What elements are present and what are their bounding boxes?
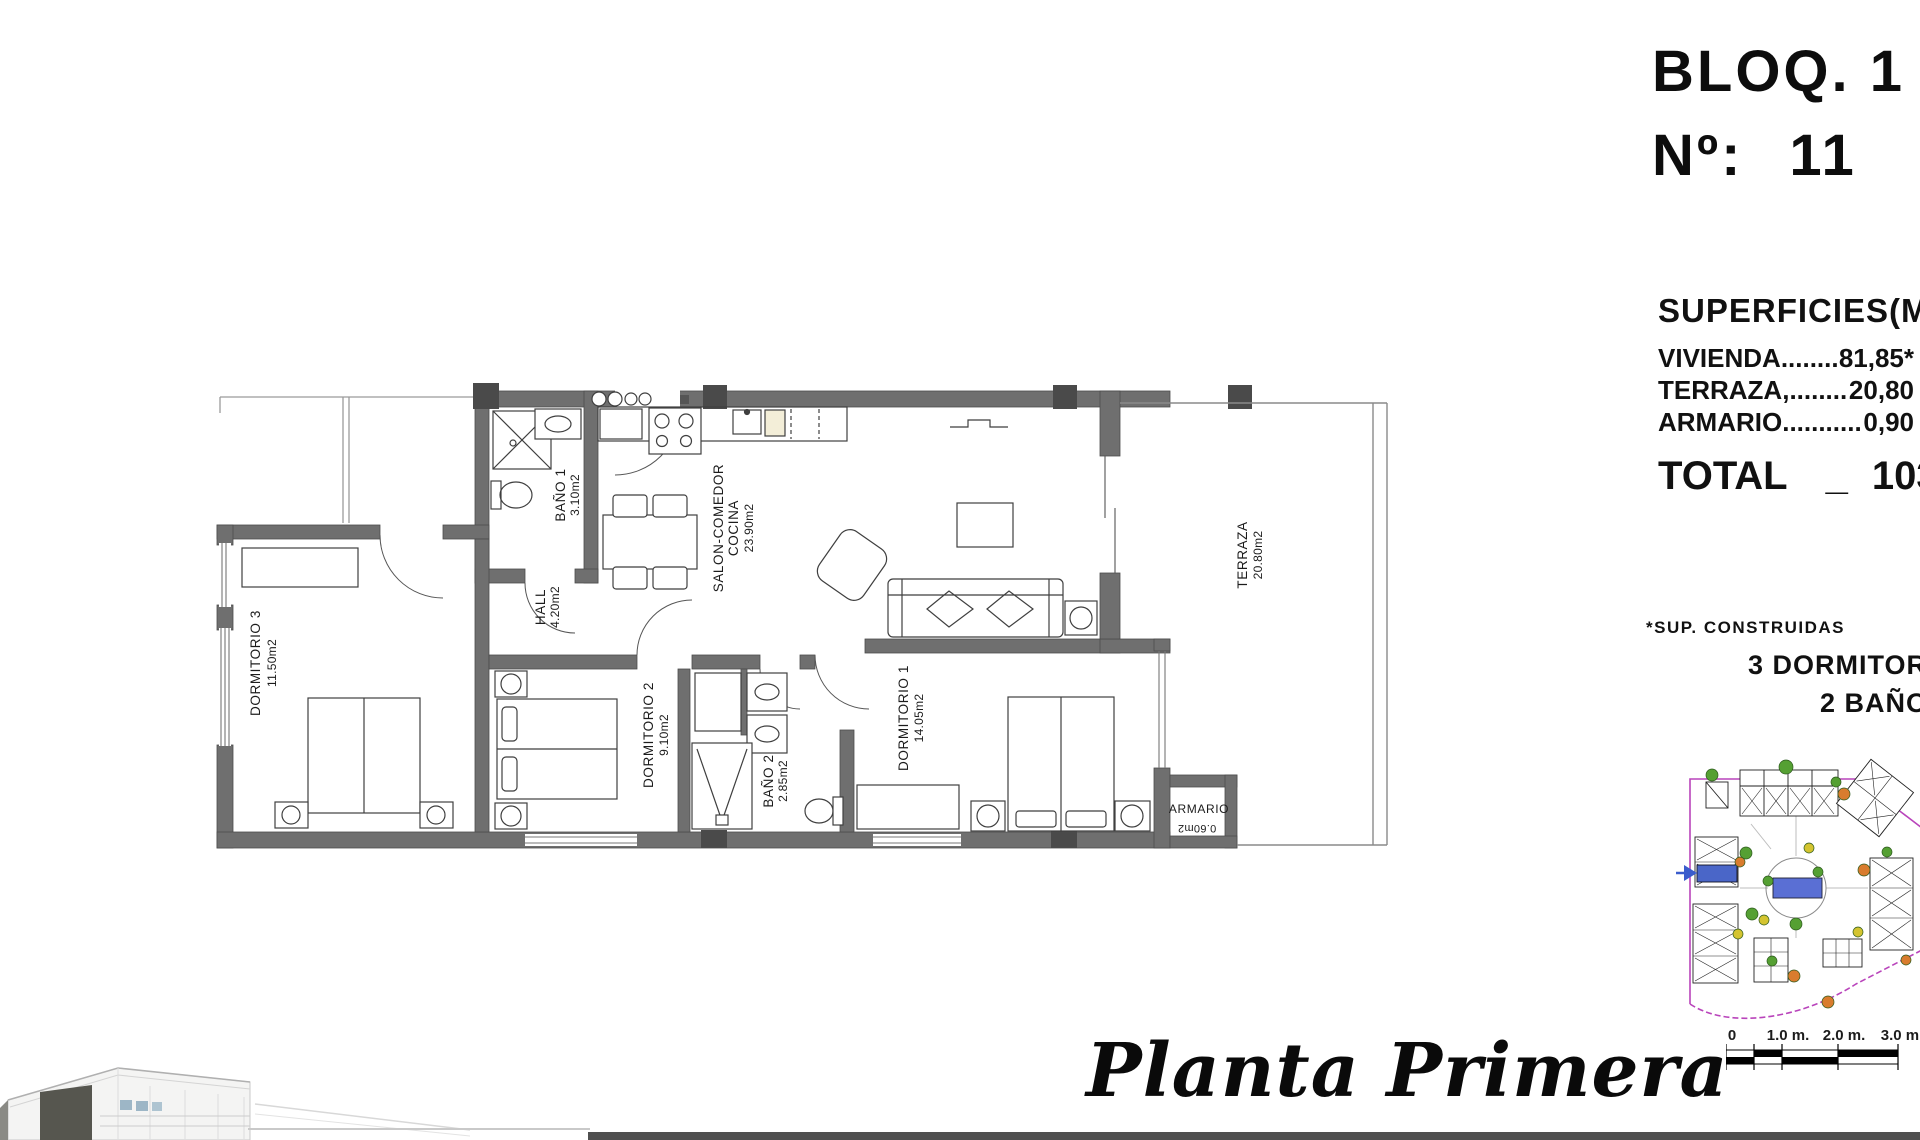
scale-label-1: 1.0 m. <box>1767 1027 1810 1044</box>
room-area-bano2: 2.85m2 <box>776 760 790 802</box>
row-value: 20,80 <box>1849 374 1914 406</box>
total-dash: _ <box>1826 454 1848 499</box>
site-plan-map <box>1676 754 1920 1034</box>
room-area-dormitorio1: 14.05m2 <box>912 694 926 743</box>
scale-label-0: 0 <box>1728 1027 1736 1044</box>
room-label-dormitorio2: DORMITORIO 2 <box>641 682 656 788</box>
superficies-row-armario: ARMARIO .................... 0,90 <box>1658 406 1914 438</box>
room-label-bano2: BAÑO 2 <box>761 754 776 807</box>
unit-header: BLOQ. 1 Nº:11 <box>1652 30 1905 198</box>
scale-bar: 0 1.0 m. 2.0 m. 3.0 m. <box>1726 1024 1920 1088</box>
bottom-divider-bar <box>588 1132 1920 1140</box>
superficies-row-terraza: TERRAZA, .................... 20,80 <box>1658 374 1914 406</box>
superficies-table: SUPERFICIES(M2) VIVIENDA ...............… <box>1658 292 1918 499</box>
room-label-salon-1: SALON-COMEDOR <box>711 464 726 593</box>
room-area-armario: 0.60m2 <box>1178 822 1217 834</box>
unit-arrow-icon <box>1676 865 1697 881</box>
total-value: 103,55 <box>1872 454 1920 499</box>
constructed-area-note: *SUP. CONSTRUIDAS <box>1646 618 1845 638</box>
site-pool <box>1773 878 1822 898</box>
scale-bar-segments <box>1726 1044 1898 1070</box>
no-label: Nº: <box>1652 123 1743 188</box>
room-area-dormitorio3: 11.50m2 <box>265 639 279 687</box>
room-label-dormitorio1: DORMITORIO 1 <box>896 665 911 771</box>
page: { "header": { "bloq": "BLOQ. 1", "no_lab… <box>0 0 1920 1140</box>
scale-label-2: 2.0 m. <box>1823 1027 1866 1044</box>
scale-labels: 0 1.0 m. 2.0 m. 3.0 m. <box>1728 1027 1920 1044</box>
floor-plan: DORMITORIO 3 11.50m2 BAÑO 1 3.10m2 HALL … <box>175 383 1425 863</box>
room-label-salon-2: COCINA <box>726 500 741 556</box>
room-label-bano1: BAÑO 1 <box>553 468 568 521</box>
room-area-salon: 23.90m2 <box>742 504 756 553</box>
total-label: TOTAL <box>1658 454 1788 499</box>
highlighted-unit <box>1697 865 1737 882</box>
bloq-label: BLOQ. 1 <box>1652 30 1905 114</box>
bedrooms-note: 3 DORMITORIOS <box>1748 650 1920 681</box>
room-label-armario: ARMARIO <box>1169 802 1229 816</box>
room-area-terraza: 20.80m2 <box>1251 531 1265 580</box>
room-label-terraza: TERRAZA <box>1235 521 1250 588</box>
room-area-dormitorio2: 9.10m2 <box>657 714 671 756</box>
scale-label-3: 3.0 m. <box>1881 1027 1920 1044</box>
dot-leader: .................... <box>1782 406 1863 438</box>
room-label-hall: HALL <box>533 589 548 625</box>
dot-leader: .................... <box>1789 374 1848 406</box>
superficies-title: SUPERFICIES(M2) <box>1658 292 1918 330</box>
bathrooms-note: 2 BAÑOS <box>1820 688 1920 719</box>
row-value: 0,90 <box>1863 406 1914 438</box>
bottom-divider-light <box>248 1128 590 1130</box>
floor-title: Planta Primera <box>1086 1028 1728 1114</box>
landing-lines <box>220 397 473 523</box>
furniture <box>242 392 1150 831</box>
row-label: VIVIENDA <box>1658 342 1781 374</box>
superficies-row-vivienda: VIVIENDA .................... 81,85* <box>1658 342 1914 374</box>
superficies-total: TOTAL _ 103,55 <box>1658 454 1918 499</box>
room-label-dormitorio3: DORMITORIO 3 <box>248 610 263 716</box>
room-area-hall: 4.20m2 <box>548 586 562 628</box>
row-label: ARMARIO <box>1658 406 1782 438</box>
building-render <box>0 1042 470 1140</box>
no-value: 11 <box>1789 114 1856 198</box>
room-area-bano1: 3.10m2 <box>568 474 582 516</box>
row-label: TERRAZA, <box>1658 374 1789 406</box>
dot-leader: .................... <box>1781 342 1839 374</box>
unit-number-line: Nº:11 <box>1652 114 1905 198</box>
row-value: 81,85* <box>1839 342 1914 374</box>
